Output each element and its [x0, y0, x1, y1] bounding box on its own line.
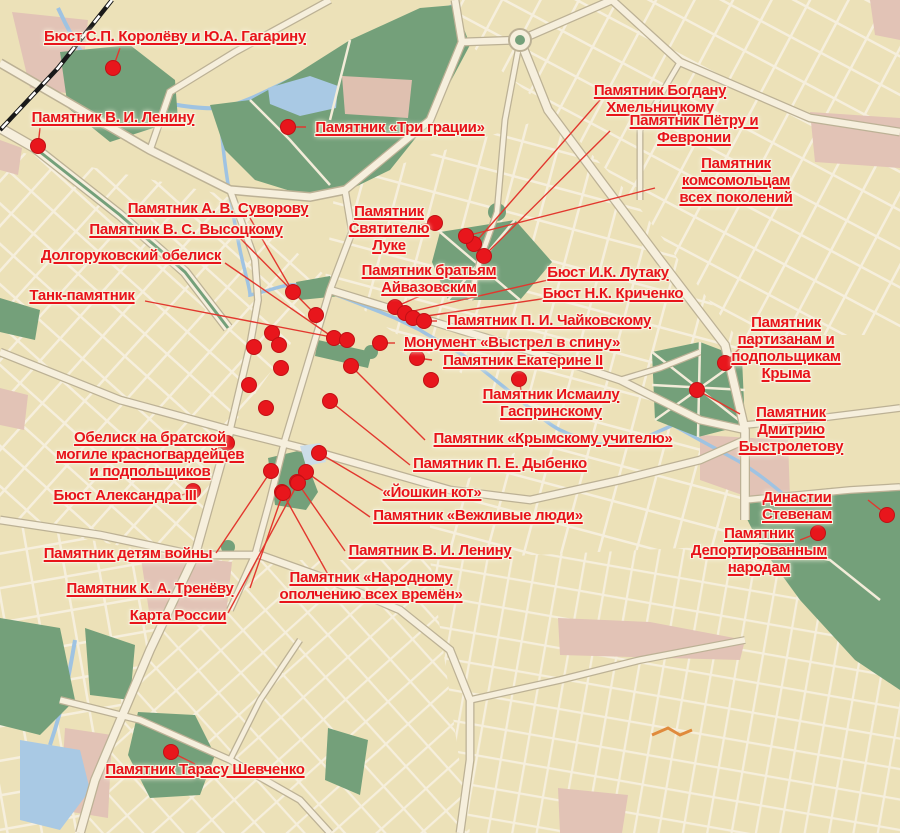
marker-label-lenin-bottom: Памятник В. И. Ленину [349, 542, 512, 559]
marker-label-chaikovsky: Памятник П. И. Чайковскому [447, 312, 651, 329]
marker-label-gasprinsky: Памятник Исмаилу Гаспринскому [483, 386, 620, 420]
marker-label-dolgorukov-obelisk: Долгоруковский обелиск [41, 247, 221, 264]
marker-label-yoshkin-kot: «Йошкин кот» [383, 484, 482, 501]
marker-label-bystroletov: Памятник Дмитрию Быстролетову [737, 404, 846, 455]
city-monuments-map: Бюст С.П. Королёву и Ю.А. ГагаринуПамятн… [0, 0, 900, 833]
marker-label-obelisk-bratskaya-mogila: Обелиск на братской могиле красногвардей… [56, 429, 244, 480]
marker-label-trenev: Памятник К. А. Тренёву [66, 580, 233, 597]
marker-label-tri-gracii: Памятник «Три грации» [315, 119, 484, 136]
marker-label-vystrel-v-spinu: Монумент «Выстрел в спину» [404, 334, 620, 351]
marker-label-shevchenko: Памятник Тарасу Шевченко [105, 761, 304, 778]
labels-layer: Бюст С.П. Королёву и Ю.А. ГагаринуПамятн… [0, 0, 900, 833]
marker-label-partisans-crimea: Памятник партизанам и подпольщикам Крыма [729, 314, 843, 382]
marker-label-suvorov: Памятник А. В. Суворову [128, 200, 309, 217]
marker-label-lenin-top: Памятник В. И. Ленину [32, 109, 195, 126]
marker-label-krymsky-uchitel: Памятник «Крымскому учителю» [434, 430, 673, 447]
marker-label-petr-fevronia: Памятник Пётру и Февронии [591, 112, 797, 146]
marker-label-karta-rossii: Карта России [130, 607, 227, 624]
marker-label-vezhlivye-lyudi: Памятник «Вежливые люди» [373, 507, 583, 524]
marker-label-svyatitel-luka: Памятник Святителю Луке [349, 203, 430, 254]
marker-label-aivazovsky: Памятник братьям Айвазовским [362, 262, 497, 296]
marker-label-lutaku: Бюст И.К. Лутаку [547, 264, 668, 281]
marker-label-vysotsky: Памятник В. С. Высоцкому [89, 221, 282, 238]
marker-label-korolev-gagarin: Бюст С.П. Королёву и Ю.А. Гагарину [44, 28, 306, 45]
marker-label-stevenam: Династии Стевенам [746, 489, 849, 523]
marker-label-narodnoe-opolchenie: Памятник «Народному ополчению всех времё… [279, 569, 462, 603]
marker-label-detyam-voiny: Памятник детям войны [44, 545, 213, 562]
marker-label-dybenko: Памятник П. Е. Дыбенко [413, 455, 587, 472]
marker-label-deportirovannym: Памятник Депортированным народам [691, 525, 827, 576]
marker-label-tank: Танк-памятник [29, 287, 134, 304]
marker-label-ekaterina-ii: Памятник Екатерине II [443, 352, 603, 369]
marker-label-krichenko: Бюст Н.К. Криченко [543, 285, 683, 302]
marker-label-komsomol: Памятник комсомольцам всех поколений [654, 155, 818, 206]
marker-label-bogdan-khmelnitsky: Памятник Богдану Хмельницкому [540, 82, 780, 116]
marker-label-alexander-iii: Бюст Александра III [54, 487, 197, 504]
